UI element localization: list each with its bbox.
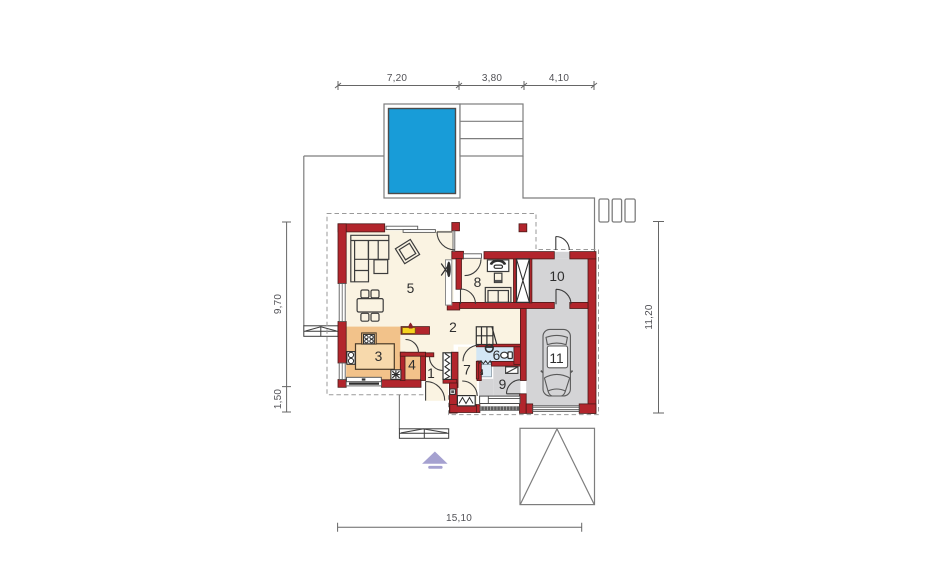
svg-text:1,50: 1,50 (273, 389, 284, 410)
svg-text:10: 10 (549, 269, 565, 284)
svg-text:9,70: 9,70 (273, 294, 284, 315)
svg-text:4,10: 4,10 (549, 73, 570, 84)
svg-text:3,80: 3,80 (482, 73, 503, 84)
svg-text:8: 8 (474, 275, 482, 290)
svg-text:3: 3 (375, 349, 383, 364)
svg-text:9: 9 (499, 377, 507, 392)
svg-text:7: 7 (463, 363, 471, 378)
svg-text:1: 1 (427, 366, 435, 381)
svg-text:11,20: 11,20 (644, 304, 655, 330)
svg-text:15,10: 15,10 (446, 513, 472, 524)
svg-text:11: 11 (549, 351, 563, 366)
svg-text:2: 2 (449, 320, 457, 335)
svg-text:4: 4 (408, 358, 416, 373)
svg-text:6: 6 (493, 348, 501, 363)
svg-text:7,20: 7,20 (387, 73, 408, 84)
svg-text:5: 5 (407, 281, 415, 296)
